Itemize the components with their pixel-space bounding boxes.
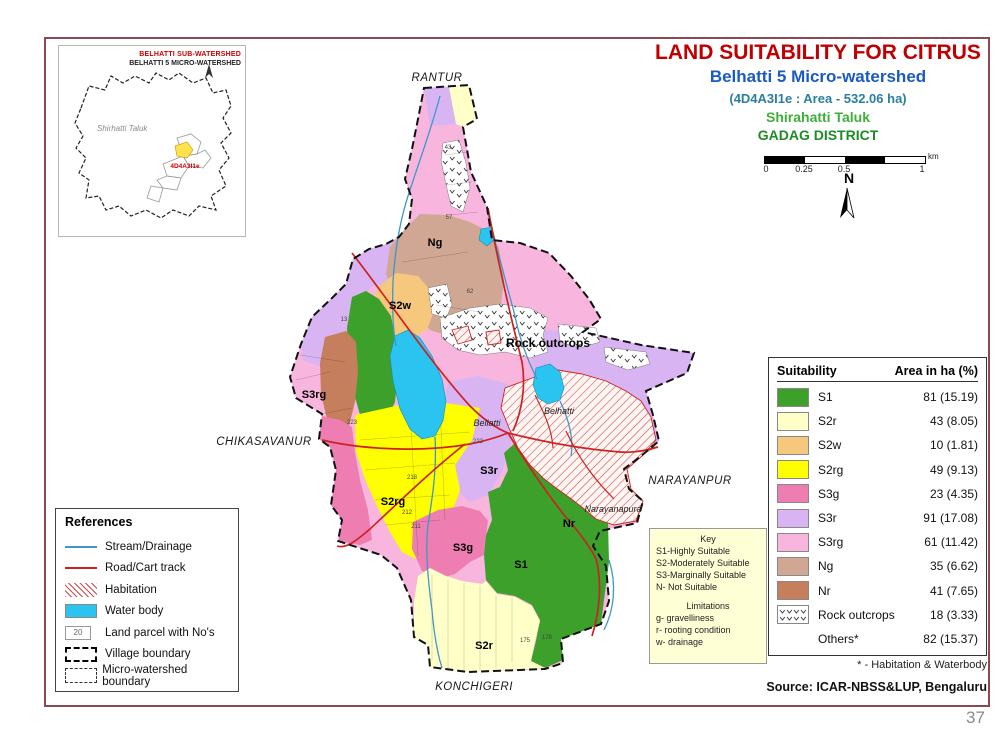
slide-page: BELHATTI SUB-WATERSHED BELHATTI 5 MICRO-… [0,0,1008,756]
suitability-row: S3r91 (17.08) [777,506,978,530]
suitability-area-value: 41 (7.65) [930,584,978,598]
label-s3rg: S3rg [302,389,326,401]
key-box: Key S1-Highly SuitableS2-Moderately Suit… [649,528,767,664]
label-s1: S1 [514,559,527,571]
reference-label: Village boundary [105,648,190,660]
parcel-number: 13 [341,317,348,323]
suitability-class-label: Rock outcrops [818,608,930,622]
suitability-class-label: S2w [818,438,930,452]
color-swatch [777,509,809,528]
color-swatch [777,436,809,455]
parcel-number: 175 [520,638,531,644]
color-swatch [777,388,809,407]
parcel-number: 222 [473,439,484,445]
suitability-class-label: S2r [818,414,930,428]
reference-row: Road/Cart track [65,558,229,580]
references-title: References [65,515,229,529]
label-nr: Nr [563,518,576,530]
reference-label: Water body [105,605,163,617]
suitability-row: S2r43 (8.05) [777,409,978,433]
key-title: Key [654,534,762,546]
suitability-area-value: 18 (3.33) [930,608,978,622]
suitability-table: Suitability Area in ha (%) S181 (15.19)S… [768,357,987,656]
reference-row: Village boundary [65,644,229,666]
suitability-class-label: S1 [818,390,923,404]
color-swatch [777,581,809,600]
suitability-area-value: 81 (15.19) [923,390,978,404]
suitability-row: Nr41 (7.65) [777,579,978,603]
suitability-rows: S181 (15.19)S2r43 (8.05)S2w10 (1.81)S2rg… [777,385,978,651]
color-swatch [777,484,809,503]
suitability-row: S3rg61 (11.42) [777,530,978,554]
page-number: 37 [966,708,985,728]
color-swatch [777,460,809,479]
suitability-class-label: S2rg [818,463,930,477]
suitability-header: Suitability Area in ha (%) [777,364,978,382]
key-line: S1-Highly Suitable [654,546,762,558]
suitability-class-label: S3g [818,487,930,501]
suitability-area-value: 10 (1.81) [930,438,978,452]
suitability-row: S181 (15.19) [777,385,978,409]
color-swatch [777,412,809,431]
watershed-symbol [65,668,102,683]
suitability-col1: Suitability [777,364,837,378]
suitability-area-value: 43 (8.05) [930,414,978,428]
reference-row: Habitation [65,579,229,601]
suitability-area-value: 61 (11.42) [924,535,978,549]
village-narayanapura: Narayanapura [584,504,641,514]
color-swatch [777,533,809,552]
reference-label: Stream/Drainage [105,541,192,553]
references-box: References Stream/DrainageRoad/Cart trac… [55,508,239,692]
parcel-number: 43 [445,145,452,151]
source-credit: Source: ICAR-NBSS&LUP, Bengaluru [600,680,987,694]
place-chikasavanur: CHIKASAVANUR [216,436,311,448]
key-line: S2-Moderately Suitable [654,558,762,570]
label-s2w: S2w [389,300,411,312]
suitability-class-label: Others* [818,632,923,646]
label-rock-outcrops: Rock outcrops [506,336,590,350]
label-s2r: S2r [475,640,493,652]
parcel-number: 211 [411,524,421,530]
habitation-patch [486,330,501,345]
parcel-symbol: 20 [65,626,105,640]
parcel-number: 62 [467,289,474,295]
suitability-class-label: S3rg [818,535,924,549]
limitation-line: w- drainage [654,637,762,649]
suitability-row: Ng35 (6.62) [777,554,978,578]
suitability-row: S2w10 (1.81) [777,433,978,457]
village-symbol [65,647,105,662]
suitability-class-label: Nr [818,584,930,598]
references-rows: Stream/DrainageRoad/Cart trackHabitation… [65,536,229,687]
rock-patch [428,284,452,318]
table-footnote: * - Habitation & Waterbody [768,659,987,671]
road-symbol [65,567,105,569]
suitability-area-value: 23 (4.35) [930,487,978,501]
reference-label: Micro-watershed boundary [102,664,229,688]
reference-row: Stream/Drainage [65,536,229,558]
limitation-line: g- gravelliness [654,613,762,625]
suitability-area-value: 82 (15.37) [923,632,978,646]
suitability-row: Rock outcrops18 (3.33) [777,603,978,627]
rock-outcrops-swatch [777,605,809,624]
suitability-area-value: 49 (9.13) [930,463,978,477]
reference-label: Land parcel with No's [105,627,215,639]
color-swatch [777,557,809,576]
village-bellatti: Bellatti [473,418,501,428]
key-line: N- Not Suitable [654,582,762,594]
parcel-number: 57 [446,215,453,221]
habitation-symbol [65,583,105,597]
label-s2rg: S2rg [381,496,405,508]
reference-label: Road/Cart track [105,562,186,574]
village-belhatti: Belhatti [544,406,575,416]
place-narayanpur: NARAYANPUR [648,475,731,487]
reference-row: 20Land parcel with No's [65,622,229,644]
parcel-number: 178 [542,635,553,641]
label-s3g: S3g [453,542,473,554]
limitation-lines: g- gravellinessr- rooting conditionw- dr… [654,613,762,649]
suitability-class-label: S3r [818,511,923,525]
reference-row: Water body [65,601,229,623]
reference-row: Micro-watershed boundary [65,665,229,687]
suitability-row: S3g23 (4.35) [777,482,978,506]
suitability-row: S2rg49 (9.13) [777,458,978,482]
parcel-number: 212 [402,510,413,516]
limitation-line: r- rooting condition [654,625,762,637]
suitability-row: Others*82 (15.37) [777,627,978,651]
parcel-number: 218 [407,475,418,481]
reference-label: Habitation [105,584,157,596]
place-rantur: RANTUR [412,72,463,84]
place-konchigeri: KONCHIGERI [435,681,513,693]
suitability-area-value: 35 (6.62) [930,559,978,573]
suitability-area-value: 91 (17.08) [923,511,978,525]
suitability-class-label: Ng [818,559,930,573]
label-ng: Ng [428,237,443,249]
key-line: S3-Marginally Suitable [654,570,762,582]
stream-symbol [65,546,105,548]
parcel-number: 223 [347,420,358,426]
water-symbol [65,604,105,618]
limitations-title: Limitations [654,601,762,613]
key-lines: S1-Highly SuitableS2-Moderately Suitable… [654,546,762,594]
label-s3r: S3r [480,465,498,477]
suitability-col2: Area in ha (%) [895,364,978,378]
